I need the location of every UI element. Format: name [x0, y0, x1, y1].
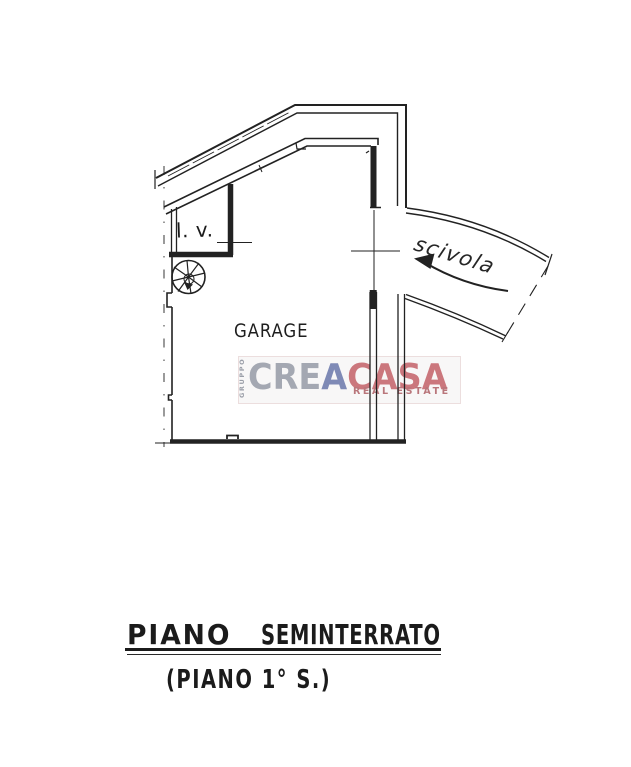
garage-right-wall — [351, 210, 405, 440]
caption-word-seminterrato: SEMINTERRATO — [261, 618, 441, 651]
floorplan-drawing — [0, 0, 631, 767]
garage-top-wall — [164, 139, 381, 215]
caption-subtitle: (PIANO 1° S.) — [166, 665, 331, 695]
spiral-staircase — [172, 261, 205, 294]
caption-underline-thin — [127, 654, 441, 655]
caption-underline-thick — [125, 648, 441, 651]
room-label-lv: l. v. — [176, 217, 214, 242]
garage-left-wall — [155, 166, 172, 447]
room-label-garage: GARAGE — [234, 320, 308, 342]
caption-word-piano: PIANO — [127, 618, 231, 651]
floorplan-page: GRUPPO CREACASA REAL ESTATE — [0, 0, 631, 767]
